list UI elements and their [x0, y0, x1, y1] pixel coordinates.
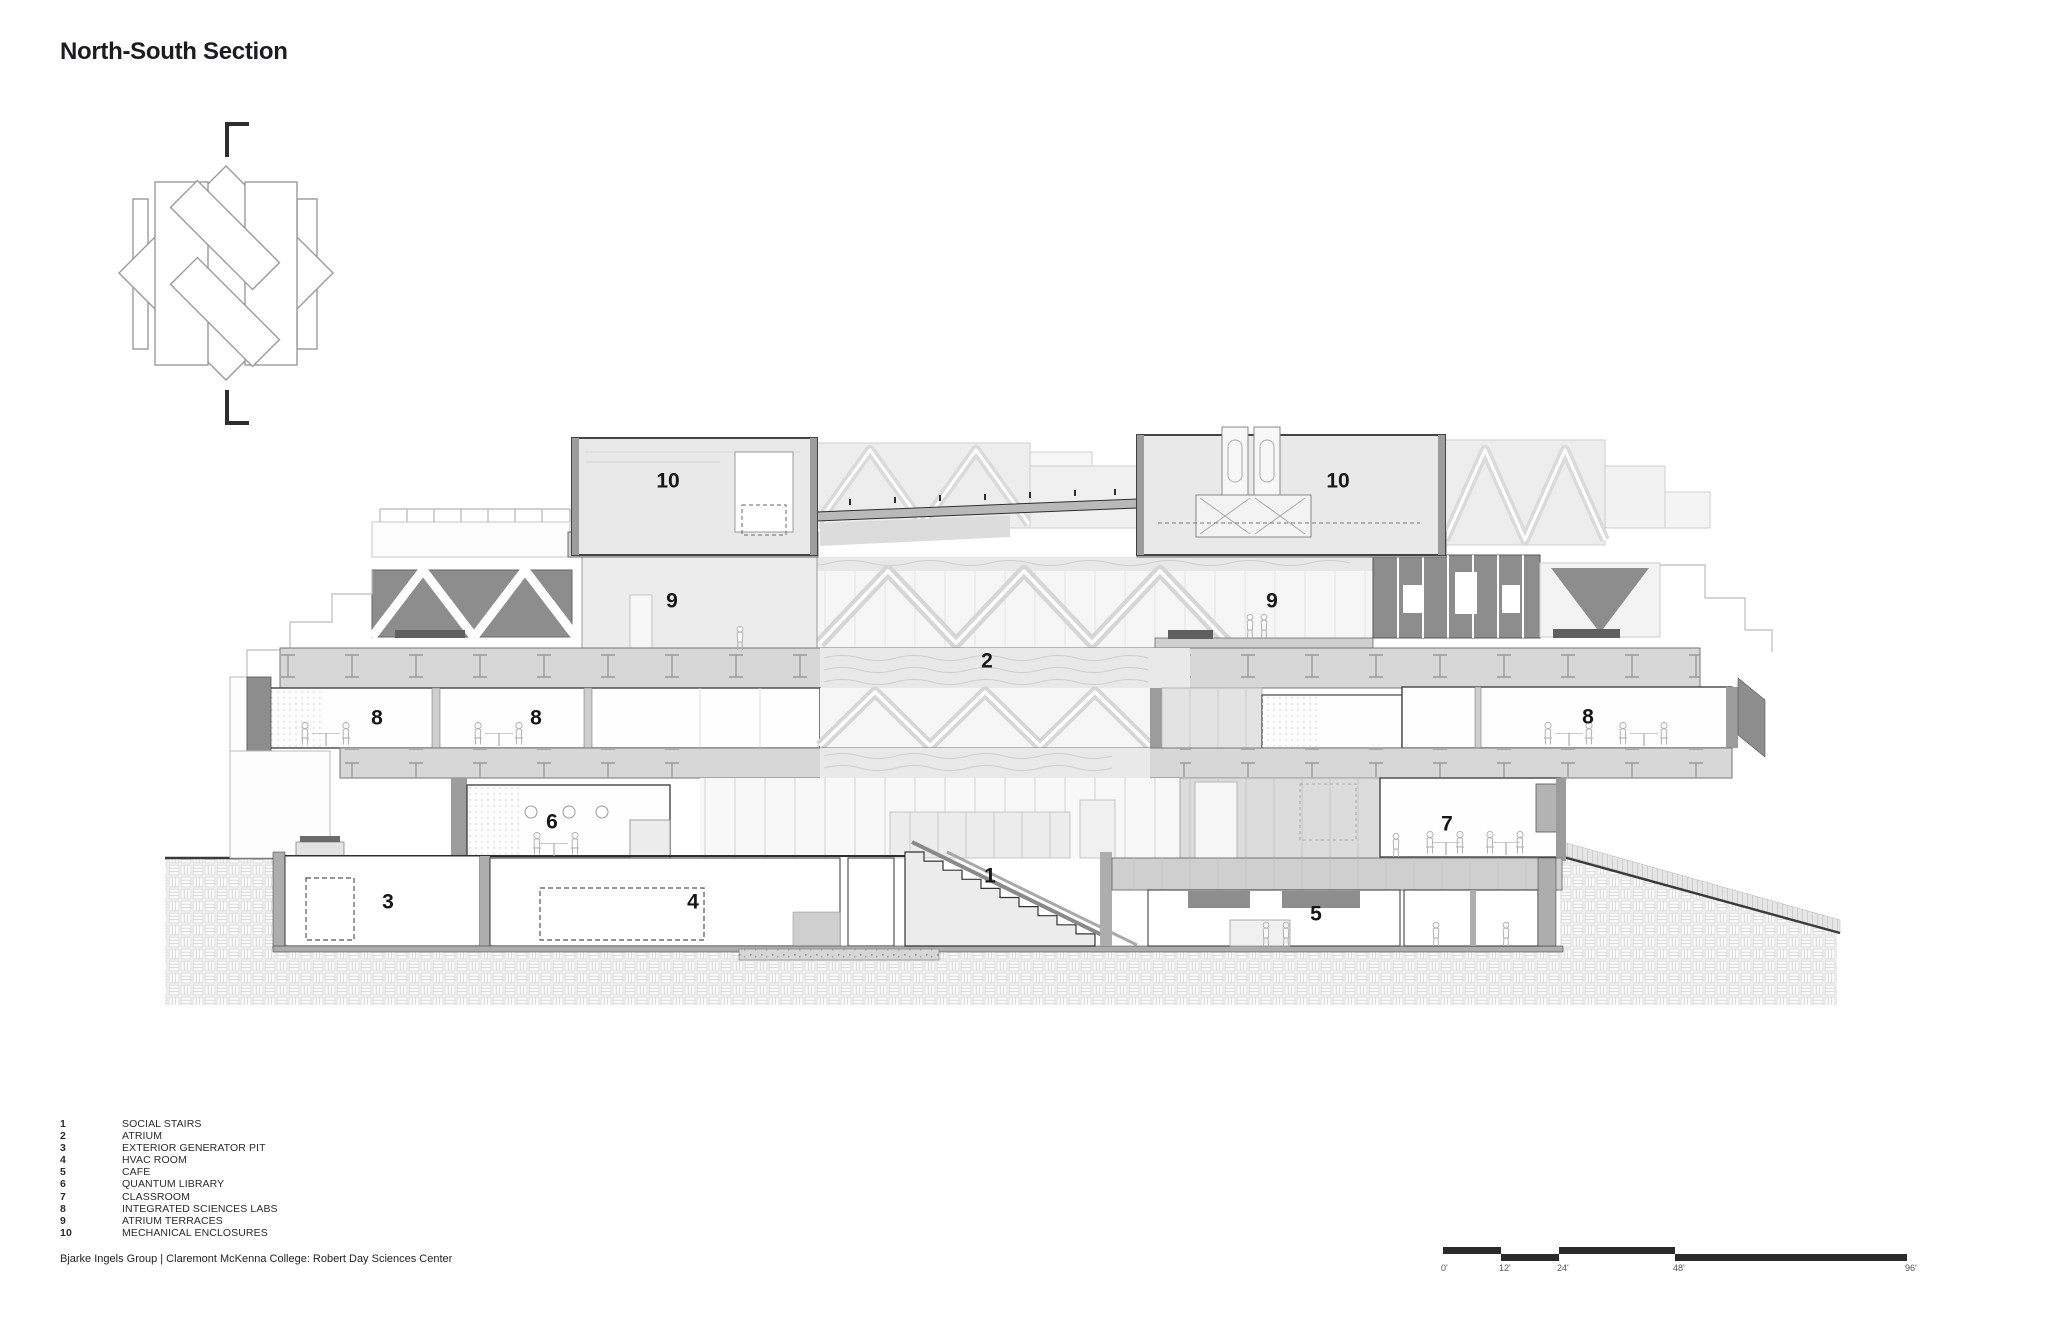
legend-label: CLASSROOM — [122, 1191, 190, 1203]
legend-row: 6QUANTUM LIBRARY — [60, 1178, 278, 1190]
room-marker-10: 10 — [656, 470, 679, 491]
legend-label: CAFE — [122, 1166, 150, 1178]
room-marker-6: 6 — [546, 811, 558, 832]
room-marker-4: 4 — [687, 891, 699, 912]
legend-number: 3 — [60, 1142, 122, 1154]
room-marker-7: 7 — [1441, 813, 1453, 834]
scale-bar-segment — [1443, 1247, 1501, 1254]
scale-tick-label: 24' — [1557, 1263, 1569, 1273]
legend-row: 3EXTERIOR GENERATOR PIT — [60, 1142, 278, 1154]
legend-row: 8INTEGRATED SCIENCES LABS — [60, 1203, 278, 1215]
scale-bar-segment — [1501, 1254, 1559, 1261]
room-marker-2: 2 — [981, 650, 993, 671]
room-marker-3: 3 — [382, 891, 394, 912]
room-marker-9: 9 — [666, 590, 678, 611]
legend-row: 5CAFE — [60, 1166, 278, 1178]
legend-number: 7 — [60, 1191, 122, 1203]
legend: 1SOCIAL STAIRS2ATRIUM3EXTERIOR GENERATOR… — [60, 1118, 278, 1239]
legend-label: QUANTUM LIBRARY — [122, 1178, 224, 1190]
legend-number: 6 — [60, 1178, 122, 1190]
legend-number: 2 — [60, 1130, 122, 1142]
legend-number: 10 — [60, 1227, 122, 1239]
legend-label: ATRIUM — [122, 1130, 162, 1142]
legend-label: SOCIAL STAIRS — [122, 1118, 202, 1130]
legend-row: 4HVAC ROOM — [60, 1154, 278, 1166]
room-marker-8: 8 — [371, 707, 383, 728]
sheet: North-South Section — [0, 0, 2048, 1325]
room-markers: 1234567888991010 — [0, 0, 2048, 1325]
scale-bar-segment — [1675, 1254, 1907, 1261]
legend-number: 9 — [60, 1215, 122, 1227]
scale-bar: 0'12'24'48'96' — [1443, 1247, 1923, 1279]
legend-label: INTEGRATED SCIENCES LABS — [122, 1203, 278, 1215]
legend-number: 1 — [60, 1118, 122, 1130]
legend-number: 8 — [60, 1203, 122, 1215]
legend-label: MECHANICAL ENCLOSURES — [122, 1227, 268, 1239]
legend-row: 2ATRIUM — [60, 1130, 278, 1142]
room-marker-8: 8 — [1582, 706, 1594, 727]
room-marker-10: 10 — [1326, 470, 1349, 491]
legend-label: ATRIUM TERRACES — [122, 1215, 223, 1227]
legend-row: 9ATRIUM TERRACES — [60, 1215, 278, 1227]
room-marker-8: 8 — [530, 707, 542, 728]
legend-label: HVAC ROOM — [122, 1154, 187, 1166]
room-marker-9: 9 — [1266, 590, 1278, 611]
room-marker-5: 5 — [1310, 903, 1322, 924]
scale-tick-label: 48' — [1673, 1263, 1685, 1273]
scale-tick-label: 12' — [1499, 1263, 1511, 1273]
scale-tick-label: 0' — [1441, 1263, 1448, 1273]
legend-number: 4 — [60, 1154, 122, 1166]
room-marker-1: 1 — [984, 865, 996, 886]
legend-label: EXTERIOR GENERATOR PIT — [122, 1142, 266, 1154]
scale-bar-segment — [1559, 1247, 1675, 1254]
legend-row: 7CLASSROOM — [60, 1191, 278, 1203]
legend-row: 10MECHANICAL ENCLOSURES — [60, 1227, 278, 1239]
legend-number: 5 — [60, 1166, 122, 1178]
attribution: Bjarke Ingels Group | Claremont McKenna … — [60, 1253, 452, 1265]
scale-tick-label: 96' — [1905, 1263, 1917, 1273]
legend-row: 1SOCIAL STAIRS — [60, 1118, 278, 1130]
